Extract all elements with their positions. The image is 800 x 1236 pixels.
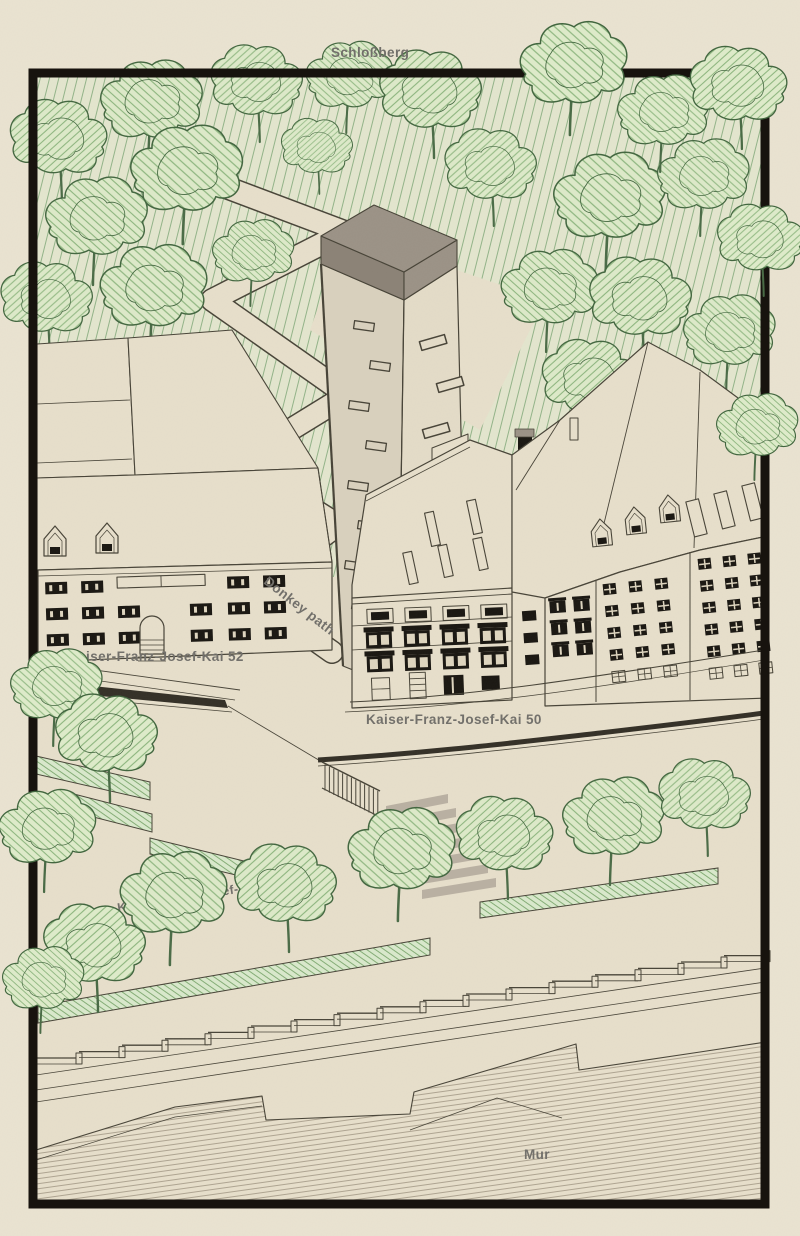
- label-schlossberg: Schloßberg: [331, 45, 409, 60]
- paper-grain: [37, 77, 761, 1200]
- architectural-site-drawing: Kaiser-Franz-Josef-Kai 52 Kaiser-Franz-J…: [0, 0, 800, 1236]
- site-plan-canvas: Kaiser-Franz-Josef-Kai 52 Kaiser-Franz-J…: [0, 0, 800, 1236]
